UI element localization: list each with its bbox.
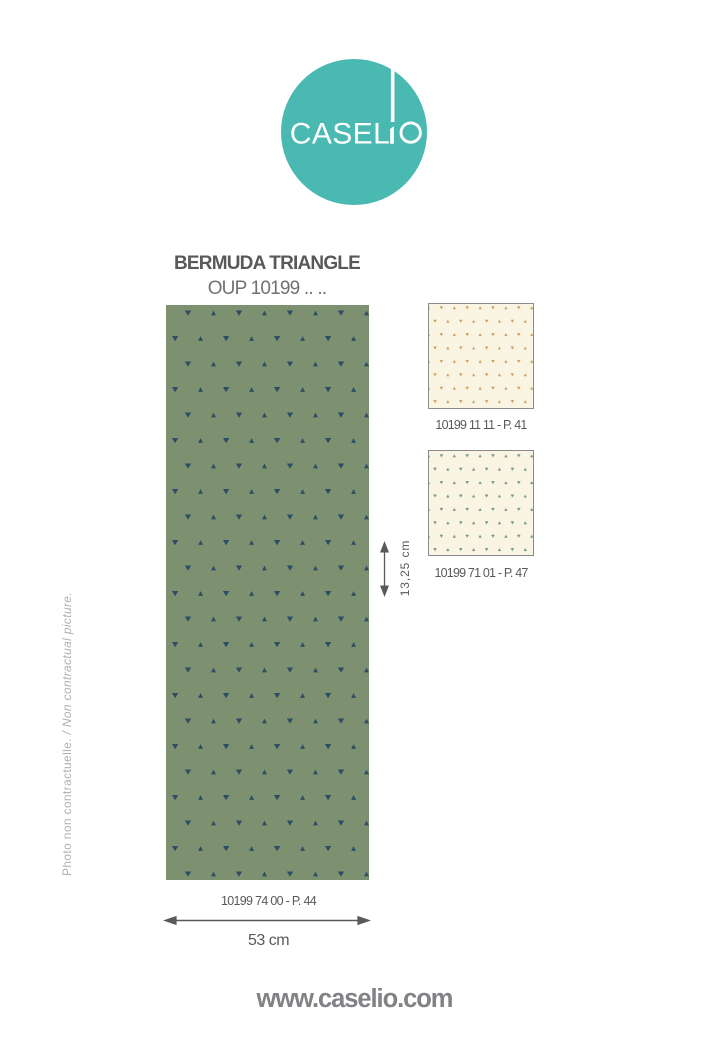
svg-text:CASEL: CASEL [289,118,389,151]
